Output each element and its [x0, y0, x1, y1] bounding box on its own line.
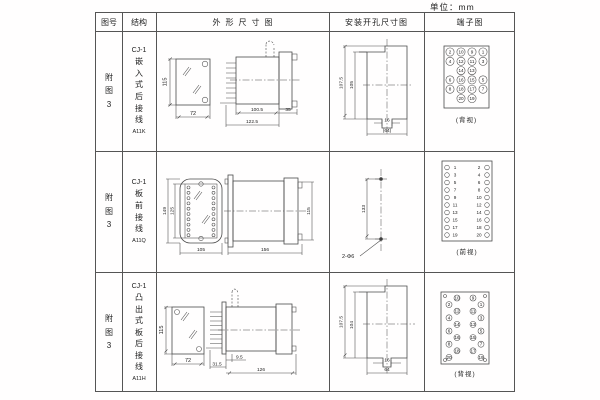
front-dot — [187, 186, 190, 189]
fig-no-text: 附图3 — [104, 71, 114, 112]
terminal-number: 12 — [476, 203, 482, 208]
terminal-number: 6 — [449, 77, 452, 82]
dim-label: 105 — [349, 81, 355, 89]
terminal-number: 11 — [470, 59, 475, 64]
terminal-number: 7 — [454, 188, 457, 193]
terminal-number: 13 — [469, 68, 475, 73]
view-label: (背视) — [454, 369, 475, 378]
terminal-number: 19 — [478, 355, 484, 360]
mounting-drawing-row3: 107.5 104 16 64 — [329, 272, 424, 393]
datasheet-page: 单位：mm 图号 结构 外形尺寸图 安装开孔尺寸图 端子图 附图3 CJ-1 嵌… — [0, 0, 600, 400]
front-view: 115 72 — [159, 306, 204, 366]
terminal-number: 18 — [454, 348, 460, 353]
dim-label: 107.5 — [339, 77, 345, 89]
terminal-number: 14 — [458, 68, 464, 73]
terminal-number: 1 — [482, 50, 485, 55]
terminal-number: 20 — [446, 355, 452, 360]
dim-label: 122.5 — [246, 119, 258, 125]
dim-label: 133 — [361, 205, 367, 213]
header-mounting: 安装开孔尺寸图 — [329, 13, 424, 31]
structure-code: A11Q — [132, 238, 146, 244]
terminal-number: 8 — [449, 87, 452, 92]
terminal-number: 4 — [478, 173, 481, 178]
front-dot — [212, 223, 215, 226]
dim-label: 126 — [257, 367, 265, 373]
terminal-circle — [485, 195, 490, 200]
terminal-number: 20 — [458, 96, 464, 101]
dim-label: (64) — [383, 128, 392, 134]
front-dot — [187, 234, 190, 237]
side-view: 156 115 — [224, 175, 314, 255]
terminal-circle — [485, 203, 490, 208]
terminal-circle — [445, 210, 450, 215]
header-outline: 外形尺寸图 — [156, 13, 329, 31]
terminal-number: 7 — [480, 342, 483, 347]
view-label: (背视) — [456, 115, 477, 124]
terminal-number: 10 — [458, 50, 464, 55]
mounting-drawing-row2: 133 2-Φ6 — [329, 151, 424, 272]
structure-cell-row2: CJ-1 板前接线 A11Q — [122, 151, 156, 272]
dim-label: 125 — [170, 207, 176, 215]
front-dot — [187, 223, 190, 226]
terminal-circle — [485, 173, 490, 178]
terminal-circle — [485, 180, 490, 185]
cutout-outline — [359, 46, 407, 128]
dim-label: 16 — [384, 118, 390, 124]
structure-desc: 凸出式板后接线 — [134, 292, 144, 373]
dim-label: 72 — [190, 111, 196, 117]
side-view: 100.5 122.5 35 — [220, 41, 300, 127]
terminal-circle — [445, 195, 450, 200]
front-view: 115 72 — [163, 58, 211, 120]
latch-clip — [266, 41, 274, 57]
terminal-number: 16 — [454, 335, 460, 340]
front-dot — [212, 202, 215, 205]
terminal-number: 10 — [454, 296, 460, 301]
terminal-number: 3 — [454, 173, 457, 178]
terminal-circle — [445, 203, 450, 208]
front-dot — [187, 202, 190, 205]
terminal-circle — [445, 173, 450, 178]
dim-label: 115 — [306, 207, 312, 215]
fig-no-cell-row3: 附图3 — [96, 272, 122, 393]
dim-label: 64 — [384, 367, 390, 373]
structure-series: CJ-1 — [132, 283, 147, 290]
terminal-number: 4 — [449, 59, 452, 64]
spec-table: 图号 结构 外形尺寸图 安装开孔尺寸图 端子图 附图3 CJ-1 嵌入式后接线 … — [95, 12, 515, 392]
header-fig-no: 图号 — [96, 13, 122, 31]
structure-cell-row3: CJ-1 凸出式板后接线 A11H — [122, 272, 156, 393]
structure-cell-row1: CJ-1 嵌入式后接线 A11K — [122, 31, 156, 151]
terminal-diagram-row2: 1234567891011121314151617181920 (前视) — [424, 151, 516, 272]
latch-clip — [232, 289, 238, 307]
terminal-number: 11 — [471, 309, 476, 314]
terminal-number: 13 — [452, 210, 458, 215]
terminal-circle — [485, 188, 490, 193]
terminal-number: 5 — [454, 180, 457, 185]
dim-label: 115 — [163, 78, 169, 87]
dim-label: 107.5 — [339, 316, 345, 328]
terminal-circle — [445, 218, 450, 223]
header-terminal: 端子图 — [424, 13, 516, 31]
mounting-drawing-row1: 107.5 105 16 (64) — [329, 31, 424, 151]
dim-label: 16 — [384, 358, 390, 364]
terminal-number: 12 — [458, 59, 464, 64]
front-dot — [187, 191, 190, 194]
front-dot — [187, 218, 190, 221]
terminal-number: 11 — [453, 203, 458, 208]
terminal-number: 6 — [478, 180, 481, 185]
terminal-number: 7 — [482, 87, 485, 92]
terminal-number: 18 — [476, 225, 482, 230]
structure-desc: 板前接线 — [134, 188, 144, 234]
terminal-number: 19 — [452, 233, 458, 238]
front-dot — [212, 213, 215, 216]
terminal-number: 3 — [482, 59, 485, 64]
terminal-number: 3 — [480, 315, 483, 320]
terminal-number: 15 — [452, 218, 458, 223]
front-view: 149 125 105 — [162, 179, 222, 255]
outline-drawing-row1: 115 72 100.5 122.5 35 — [156, 31, 329, 151]
terminal-number: 9 — [471, 50, 474, 55]
dim-label: 31.5 — [212, 362, 222, 368]
terminal-circle — [445, 225, 450, 230]
terminal-number: 8 — [448, 342, 451, 347]
front-dot — [212, 228, 215, 231]
front-dot — [212, 234, 215, 237]
terminal-number: 17 — [452, 225, 458, 230]
cutout-outline — [359, 286, 407, 367]
front-dot — [187, 228, 190, 231]
side-view: 9.5 31.5 126 — [206, 289, 302, 375]
front-dot — [212, 191, 215, 194]
terminal-number: 2 — [449, 50, 452, 55]
terminal-number: 5 — [482, 77, 485, 82]
structure-series: CJ-1 — [132, 47, 147, 54]
outline-drawing-row2: 149 125 105 156 115 — [156, 151, 329, 272]
terminal-circles: 1234567891011121314151617181920 — [445, 165, 490, 238]
terminal-diagram-row3: 1092112114314136516158718172019 (背视) — [424, 272, 516, 393]
front-dot — [187, 197, 190, 200]
front-dot — [212, 186, 215, 189]
terminal-number: 9 — [454, 195, 457, 200]
fig-no-cell-row2: 附图3 — [96, 151, 122, 272]
front-dot — [212, 207, 215, 210]
terminal-number: 8 — [478, 188, 481, 193]
terminal-circles: 2109141211314136161558181772019 — [446, 48, 487, 103]
dim-label: 72 — [185, 358, 191, 364]
fig-no-text: 附图3 — [104, 191, 114, 232]
terminal-number: 18 — [458, 87, 464, 92]
front-dot — [212, 218, 215, 221]
terminal-circle — [485, 210, 490, 215]
structure-code: A11H — [132, 376, 145, 382]
terminal-number: 17 — [469, 87, 475, 92]
terminal-circle — [485, 233, 490, 238]
leader-line — [360, 240, 381, 256]
terminal-number: 14 — [476, 210, 482, 215]
terminal-circle — [445, 180, 450, 185]
terminal-circles: 1092112114314136516158718172019 — [446, 295, 484, 360]
dim-label: 35 — [285, 107, 291, 113]
front-dot — [187, 207, 190, 210]
terminal-number: 20 — [476, 233, 482, 238]
front-dot — [187, 213, 190, 216]
terminal-circle — [445, 165, 450, 170]
dim-label: 149 — [162, 207, 168, 215]
terminal-number: 15 — [470, 335, 476, 340]
outline-drawing-row3: 115 72 9.5 31.5 126 — [156, 272, 329, 393]
terminal-number: 2 — [448, 302, 451, 307]
dim-label: 156 — [261, 247, 269, 253]
dim-label: 115 — [159, 326, 165, 335]
terminal-number: 4 — [448, 315, 451, 320]
terminal-diagram-row1: 2109141211314136161558181772019 (背视) — [424, 31, 516, 151]
front-dot — [212, 197, 215, 200]
terminal-number: 5 — [480, 329, 483, 334]
terminal-circle — [485, 165, 490, 170]
terminal-number: 14 — [454, 322, 460, 327]
terminal-number: 2 — [478, 165, 481, 170]
terminal-number: 13 — [470, 322, 476, 327]
terminal-circle — [445, 188, 450, 193]
terminal-number: 15 — [469, 77, 475, 82]
terminal-number: 6 — [448, 329, 451, 334]
terminal-number: 9 — [472, 296, 475, 301]
header-structure: 结构 — [122, 13, 156, 31]
terminal-number: 16 — [476, 218, 482, 223]
dim-label: 104 — [349, 321, 355, 329]
terminal-number: 1 — [480, 302, 483, 307]
fig-no-text: 附图3 — [104, 312, 114, 353]
terminal-number: 17 — [470, 348, 476, 353]
terminal-circle — [485, 225, 490, 230]
view-label: (前视) — [456, 247, 477, 256]
terminal-number: 16 — [458, 77, 464, 82]
terminal-number: 12 — [454, 309, 460, 314]
terminal-number: 1 — [454, 165, 457, 170]
structure-desc: 嵌入式后接线 — [134, 56, 144, 126]
terminal-block — [442, 161, 492, 241]
structure-code: A11K — [132, 129, 145, 135]
dim-label: 105 — [197, 247, 205, 253]
terminal-circle — [485, 218, 490, 223]
hole-callout: 2-Φ6 — [342, 254, 354, 260]
fig-no-cell-row1: 附图3 — [96, 31, 122, 151]
structure-series: CJ-1 — [132, 179, 147, 186]
dim-label: 9.5 — [236, 355, 243, 361]
dim-label: 100.5 — [251, 107, 263, 113]
terminal-pins — [220, 63, 236, 103]
terminal-number: 10 — [476, 195, 482, 200]
terminal-number: 19 — [469, 96, 475, 101]
terminal-circle — [445, 233, 450, 238]
